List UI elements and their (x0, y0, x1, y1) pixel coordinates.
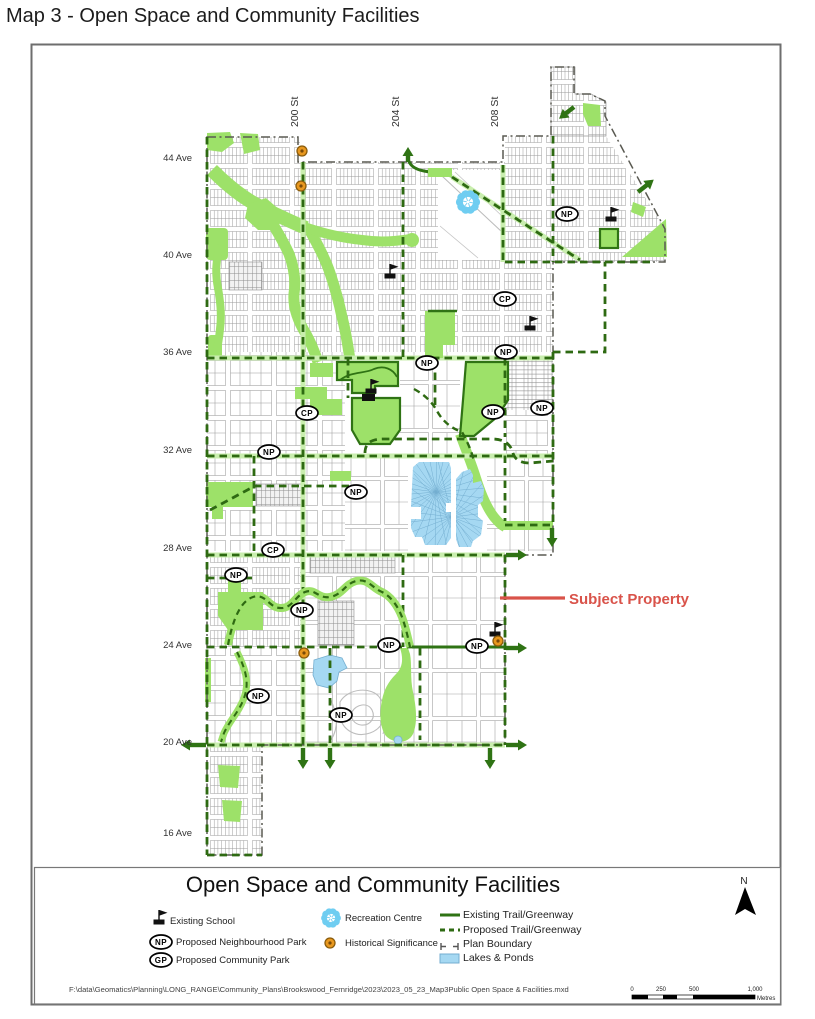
svg-text:NP: NP (471, 642, 483, 651)
svg-text:28 Ave: 28 Ave (163, 543, 192, 554)
svg-text:Plan Boundary: Plan Boundary (463, 938, 533, 950)
svg-text:NP: NP (155, 938, 167, 947)
svg-text:NP: NP (487, 408, 499, 417)
svg-text:24 Ave: 24 Ave (163, 640, 192, 651)
svg-text:40 Ave: 40 Ave (163, 250, 192, 261)
svg-text:NP: NP (561, 210, 573, 219)
svg-text:Metres: Metres (757, 996, 775, 1002)
svg-text:208 St: 208 St (489, 97, 501, 127)
svg-text:200 St: 200 St (289, 97, 301, 127)
svg-text:Historical Significance: Historical Significance (345, 938, 438, 949)
svg-text:Proposed Neighbourhood Park: Proposed Neighbourhood Park (176, 937, 307, 948)
svg-text:250: 250 (656, 987, 667, 993)
svg-text:Existing School: Existing School (170, 916, 235, 927)
svg-text:Subject Property: Subject Property (569, 591, 690, 608)
svg-text:F:\data\Geomatics\Planning\LON: F:\data\Geomatics\Planning\LONG_RANGE\Co… (69, 985, 569, 994)
svg-text:Open Space and Community Facil: Open Space and Community Facilities (186, 872, 560, 897)
svg-text:36 Ave: 36 Ave (163, 347, 192, 358)
svg-text:Proposed Community Park: Proposed Community Park (176, 955, 290, 966)
svg-text:Proposed Trail/Greenway: Proposed Trail/Greenway (463, 924, 582, 936)
svg-text:CP: CP (301, 409, 313, 418)
svg-text:N: N (740, 876, 747, 887)
svg-text:NP: NP (536, 404, 548, 413)
svg-text:32 Ave: 32 Ave (163, 445, 192, 456)
svg-text:NP: NP (383, 641, 395, 650)
svg-text:NP: NP (335, 711, 347, 720)
svg-text:NP: NP (500, 348, 512, 357)
svg-text:NP: NP (230, 571, 242, 580)
svg-text:Map 3 - Open Space and Communi: Map 3 - Open Space and Community Facilit… (6, 5, 420, 27)
svg-text:Lakes & Ponds: Lakes & Ponds (463, 952, 534, 964)
svg-text:20 Ave: 20 Ave (163, 737, 192, 748)
svg-text:500: 500 (689, 987, 700, 993)
svg-text:CP: CP (267, 546, 279, 555)
svg-text:CP: CP (499, 295, 511, 304)
svg-text:GP: GP (155, 956, 168, 965)
svg-text:NP: NP (350, 488, 362, 497)
svg-text:1,000: 1,000 (747, 987, 763, 993)
svg-text:44 Ave: 44 Ave (163, 153, 192, 164)
svg-text:NP: NP (252, 692, 264, 701)
svg-text:204 St: 204 St (390, 97, 402, 127)
svg-text:NP: NP (421, 359, 433, 368)
svg-text:16 Ave: 16 Ave (163, 828, 192, 839)
svg-text:Recreation Centre: Recreation Centre (345, 913, 422, 924)
svg-text:NP: NP (296, 606, 308, 615)
svg-text:NP: NP (263, 448, 275, 457)
svg-text:Existing Trail/Greenway: Existing Trail/Greenway (463, 909, 574, 921)
